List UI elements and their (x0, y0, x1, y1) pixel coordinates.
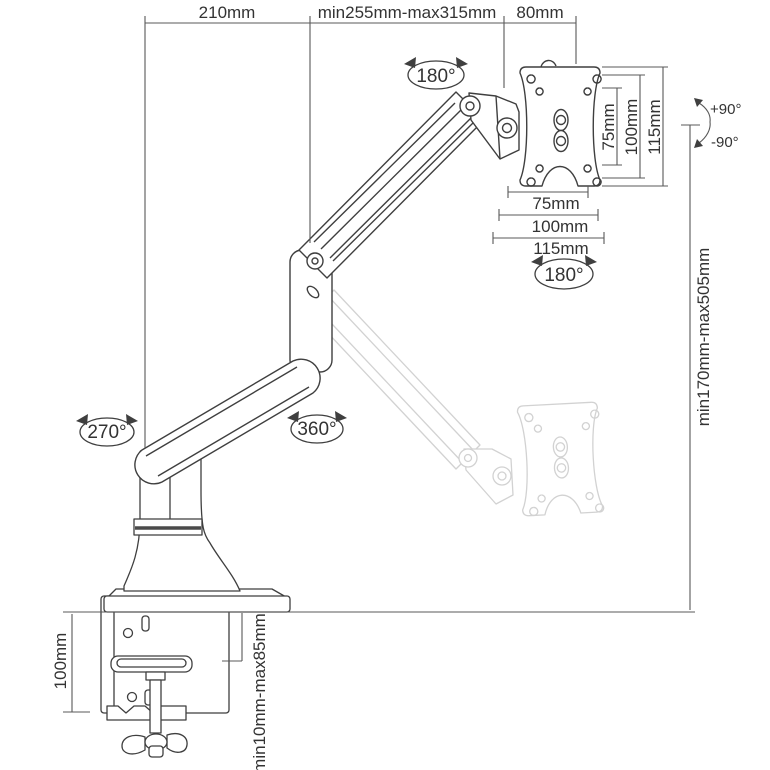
label-clamp-height: 100mm (51, 633, 70, 690)
label-vesa-h-mid: 100mm (532, 217, 589, 236)
ghost-arm-position (310, 290, 604, 516)
clamp-hole-lower (128, 693, 137, 702)
ghost-upper-arm (310, 290, 480, 469)
base-and-riser (104, 449, 290, 612)
desk-clamp (101, 596, 229, 757)
diagram-canvas: 210mm min255mm-max315mm 80mm 180° 75mm 1… (0, 0, 770, 770)
label-vesa-v-inner: 75mm (599, 103, 618, 150)
clamp-slot-upper (142, 616, 149, 631)
upper-arm (299, 92, 484, 278)
label-height-range: min170mm-max505mm (694, 248, 713, 427)
label-base-swivel: 270° (87, 422, 126, 443)
label-tilt-up: +90° (710, 101, 741, 118)
head-pivot-center (466, 102, 474, 110)
plate-screw-bottom (557, 137, 566, 146)
base-front-face (104, 596, 290, 612)
label-vesa-h-inner: 75mm (532, 194, 579, 213)
clamp-knob-post (149, 746, 163, 757)
clamp-wing-left (122, 735, 145, 753)
tilt-arrow-arc (699, 103, 710, 143)
clamp-bracket-face (101, 596, 229, 713)
ghost-plate-screw-bottom (557, 464, 566, 473)
label-vesa-v-outer: 115mm (645, 99, 664, 154)
label-head-swivel: 180° (416, 66, 455, 87)
clamp-hole-upper (124, 629, 133, 638)
clamp-lower-jaw (107, 706, 186, 720)
clamp-screw-shaft (150, 680, 161, 733)
ghost-vesa-plate (517, 402, 604, 516)
lower-arm (135, 359, 320, 484)
label-plate-rotation: 180° (544, 265, 583, 286)
label-tilt-down: -90° (711, 134, 739, 151)
ghost-plate-screw-top (556, 443, 565, 452)
label-vesa-h-outer: 115mm (533, 239, 588, 258)
ghost-head-pivot-center (465, 455, 472, 462)
monitor-arm-dimension-diagram: 210mm min255mm-max315mm 80mm 180° 75mm 1… (0, 0, 770, 770)
ghost-knob-inner (498, 472, 506, 480)
clamp-pad-inner (117, 659, 186, 667)
label-head-length: 80mm (516, 3, 563, 22)
label-desk-thickness: min10mm-max85mm (250, 613, 269, 770)
label-lower-arm-length: 210mm (199, 3, 256, 22)
plate-screw-top (557, 116, 566, 125)
clamp-screw-collar (146, 672, 165, 680)
label-upper-arm-range: min255mm-max315mm (318, 3, 497, 22)
tilt-knob-inner (503, 124, 512, 133)
vesa-plate (520, 60, 601, 186)
clamp-wing-right (167, 734, 187, 753)
elbow-pivot-center (312, 258, 318, 264)
label-vesa-v-mid: 100mm (622, 99, 641, 156)
plate-hook (541, 60, 556, 67)
label-arm-swivel: 360° (297, 419, 336, 440)
